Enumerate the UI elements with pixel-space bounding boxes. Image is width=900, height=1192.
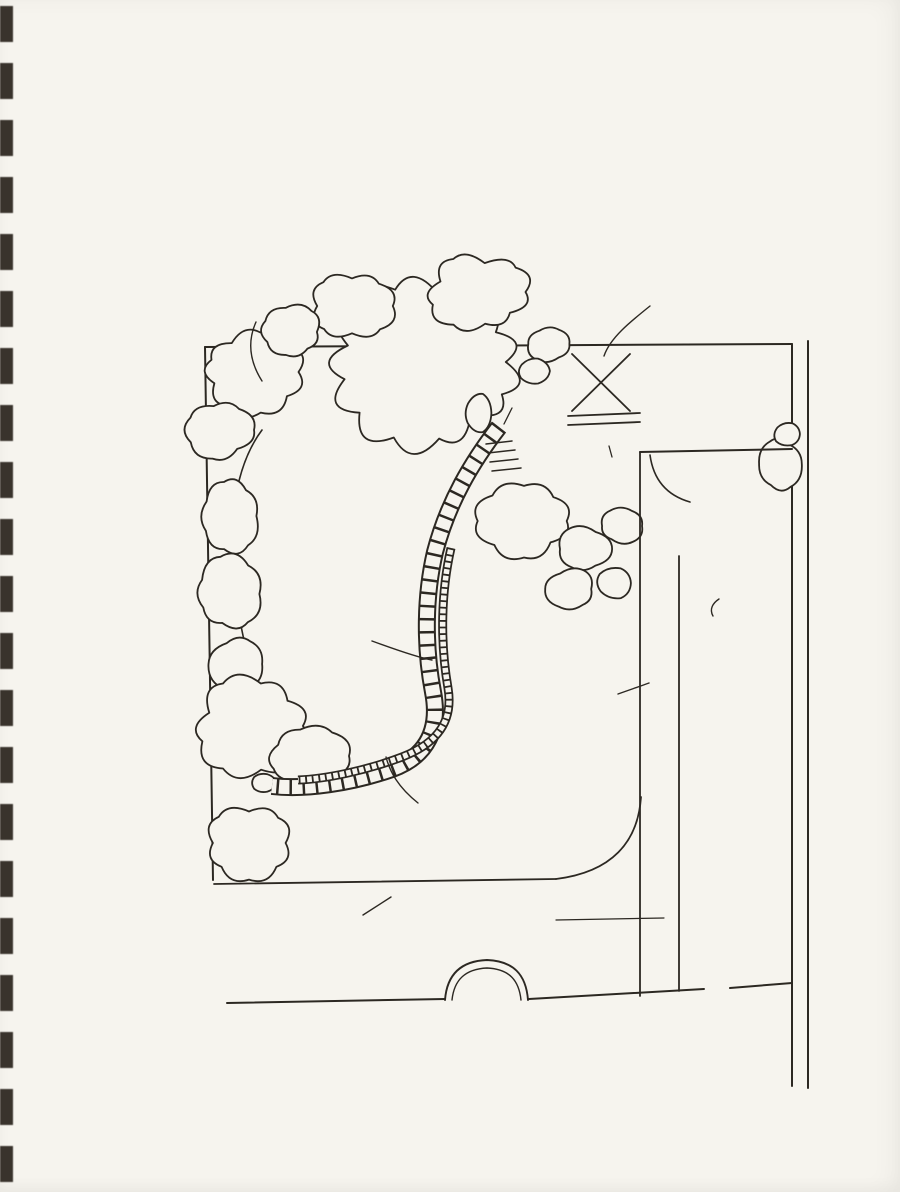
shrub-compost [528,327,570,362]
structures [214,306,792,1003]
leader-allee [618,683,649,694]
leader-poubelles [711,599,719,616]
compost-bench [568,422,640,425]
stair-step [492,468,521,471]
aire-curve [650,455,690,502]
shrub-center [475,483,569,559]
boundary-bottom [227,999,445,1003]
shrub-compost [519,358,550,383]
leader-compost [604,306,650,356]
gate-arch [445,960,528,1000]
boundary-bottom [529,989,704,999]
leader-ecran [609,446,612,457]
lawn-corner-curve [556,797,641,879]
plan-drawing [0,0,900,1192]
stair-step [490,459,518,462]
terrasse-gridline [556,918,664,920]
shrub-center [597,568,631,598]
shrub-left [201,479,258,554]
boundary-bottom [730,983,792,988]
shrub-right [759,438,802,490]
leader-escalier [504,408,512,424]
compost-bench [568,413,640,416]
gate-arch-inner [452,968,521,1000]
plan-svg [0,0,900,1192]
shrub-center [602,508,643,544]
tree-eau-corner [209,808,290,881]
shrub-center [545,568,592,609]
shrub-left [197,553,260,628]
shrub-right [774,423,800,446]
tree-large-lobe [428,254,531,331]
leader-pots [363,897,391,915]
tree-topleft [261,305,319,357]
document-page [0,0,900,1192]
tree-topleft [184,403,254,460]
tree-large-lobe [313,275,395,337]
